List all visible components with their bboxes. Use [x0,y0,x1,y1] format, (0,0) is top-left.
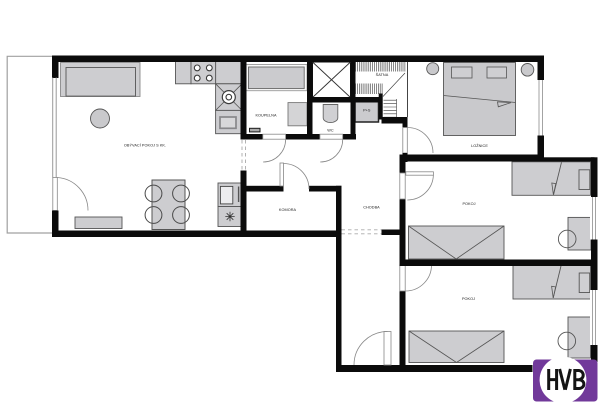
svg-text:LOŽNICE: LOŽNICE [471,143,488,148]
svg-text:KOMORA: KOMORA [279,208,297,212]
svg-text:KOUPELNA: KOUPELNA [255,114,276,118]
svg-text:POKOJ: POKOJ [462,202,475,206]
svg-text:POKOJ: POKOJ [462,297,475,301]
svg-text:OBÝVACÍ POKOJ S KK.: OBÝVACÍ POKOJ S KK. [124,144,166,148]
svg-text:ŠATNA: ŠATNA [376,72,389,77]
svg-text:P+S: P+S [363,109,371,113]
svg-text:WC: WC [327,129,334,133]
svg-text:CHODBA: CHODBA [363,206,380,210]
